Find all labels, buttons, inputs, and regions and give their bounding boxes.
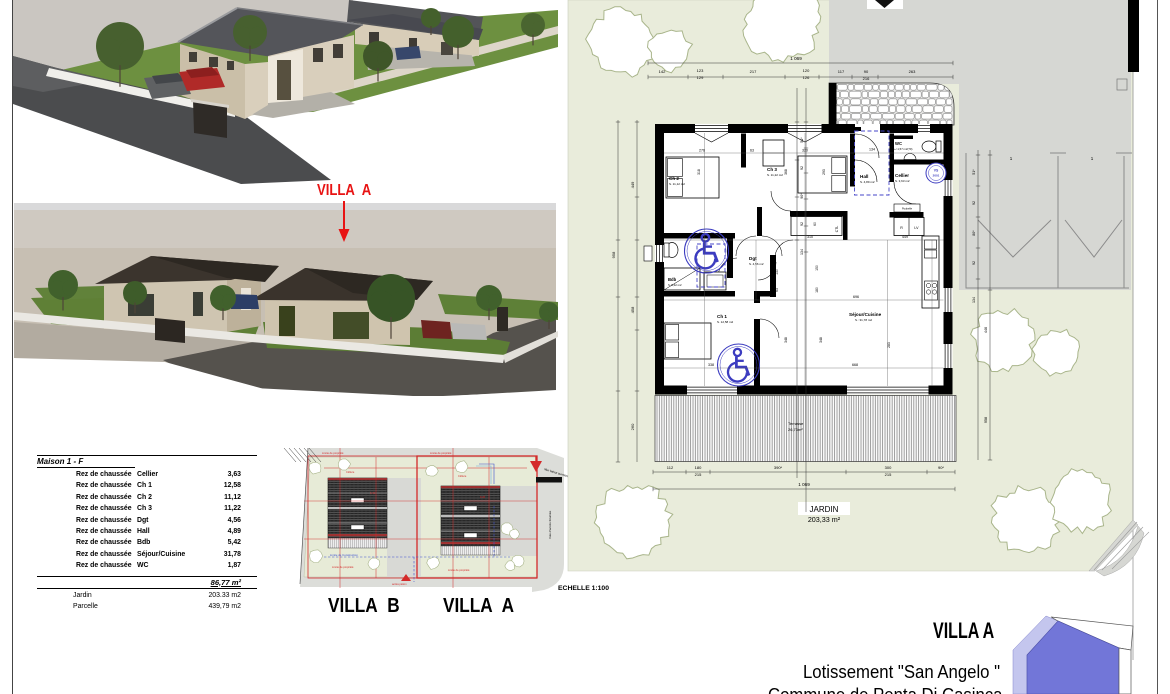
svg-text:310: 310 [807,235,813,239]
svg-text:696: 696 [853,295,859,299]
svg-text:368: 368 [784,169,788,175]
svg-text:348: 348 [784,337,788,343]
svg-text:129: 129 [697,75,704,80]
svg-text:446: 446 [984,327,988,333]
svg-text:318: 318 [658,337,662,343]
svg-text:180: 180 [695,465,702,470]
svg-text:390*: 390* [774,465,783,470]
svg-text:217: 217 [750,69,757,74]
svg-text:S. 3,63 m2: S. 3,63 m2 [895,179,910,183]
svg-text:Bdb: Bdb [668,277,677,282]
svg-text:180: 180 [815,287,819,293]
svg-text:348: 348 [819,337,823,343]
svg-text:203,33 m²: 203,33 m² [808,515,841,524]
svg-text:958: 958 [984,417,988,423]
svg-text:9,45: 9,45 [480,495,486,499]
svg-text:142: 142 [659,69,666,74]
svg-text:120: 120 [803,68,810,73]
svg-text:Terrasse: Terrasse [788,421,804,426]
svg-text:130: 130 [775,269,779,275]
svg-text:449: 449 [630,181,635,188]
svg-text:92: 92 [800,222,804,226]
svg-text:CTL: CTL [835,226,839,233]
svg-text:26,73m²: 26,73m² [788,427,803,432]
svg-text:JARDIN: JARDIN [810,505,839,514]
svg-text:Poubelle: Poubelle [902,207,913,211]
svg-text:318: 318 [658,169,662,175]
svg-text:Hall: Hall [860,174,868,179]
svg-text:126: 126 [803,75,810,80]
svg-text:Limite de Construction: Limite de Construction [330,553,358,557]
svg-text:1 069: 1 069 [798,482,810,487]
svg-text:S. 11,22 m2: S. 11,22 m2 [767,173,783,177]
svg-text:150: 150 [815,265,819,271]
svg-text:117: 117 [838,69,845,74]
svg-text:1 069: 1 069 [790,56,802,61]
svg-text:260: 260 [630,423,635,430]
svg-text:318: 318 [697,169,701,175]
svg-text:Limite de propriété: Limite de propriété [332,565,354,569]
svg-text:Ch 2: Ch 2 [669,176,679,181]
svg-text:S.: 31,78 m2: S.: 31,78 m2 [855,318,872,322]
svg-text:276: 276 [699,149,705,153]
svg-text:668: 668 [852,363,858,367]
svg-text:Limite de propriété: Limite de propriété [448,568,470,572]
svg-text:215: 215 [885,472,892,477]
svg-text:S. 11,12 m2: S. 11,12 m2 [669,182,685,186]
svg-text:293: 293 [822,169,826,175]
svg-text:accès piéton: accès piéton [392,582,407,586]
svg-text:S. 12,58 m2: S. 12,58 m2 [717,320,734,324]
svg-text:2001: 2001 [933,174,940,178]
svg-text:Clôture: Clôture [346,470,355,474]
svg-text:134: 134 [869,148,875,152]
svg-text:958: 958 [611,251,616,258]
svg-text:300: 300 [885,465,892,470]
svg-text:51*: 51* [800,137,804,143]
svg-text:Clôture: Clôture [458,474,467,478]
svg-text:Limite de propriété: Limite de propriété [430,451,452,455]
svg-text:134: 134 [972,297,976,303]
svg-text:449: 449 [902,235,908,239]
svg-text:S. 4,89 m2: S. 4,89 m2 [860,180,875,184]
svg-text:+/-1,57 m2(70): +/-1,57 m2(70) [894,147,912,151]
svg-text:63: 63 [750,149,754,153]
svg-text:92: 92 [800,166,804,170]
svg-text:9,45: 9,45 [370,491,376,495]
svg-text:R: R [900,226,903,230]
svg-text:134: 134 [800,249,804,255]
svg-text:92: 92 [972,201,976,205]
svg-text:226: 226 [682,235,688,239]
svg-text:51*: 51* [972,169,976,175]
svg-text:VS: VS [934,169,939,173]
svg-text:Séjour/Cuisine: Séjour/Cuisine [849,312,882,317]
svg-text:458: 458 [630,306,635,313]
svg-text:263: 263 [909,69,916,74]
svg-text:LV: LV [914,226,919,230]
svg-text:Limite de propriété: Limite de propriété [322,451,344,455]
svg-text:80*: 80* [972,230,976,236]
svg-text:123: 123 [697,68,704,73]
svg-text:90*: 90* [938,465,944,470]
svg-text:63: 63 [775,288,779,292]
svg-text:90*: 90* [800,193,804,199]
svg-text:Cellier: Cellier [895,173,909,178]
svg-text:S. 4,56 m2: S. 4,56 m2 [749,262,764,266]
svg-text:90: 90 [864,69,869,74]
svg-text:320: 320 [802,149,808,153]
svg-text:92: 92 [972,261,976,265]
svg-text:Ch 1: Ch 1 [717,314,727,319]
svg-text:60: 60 [813,222,817,226]
svg-text:Ch 3: Ch 3 [767,167,777,172]
svg-text:215: 215 [695,472,702,477]
svg-text:338: 338 [708,363,714,367]
svg-text:WC: WC [895,141,902,146]
svg-text:Voie d'accès bitumée: Voie d'accès bitumée [548,510,552,539]
svg-text:112: 112 [667,465,674,470]
svg-text:283: 283 [887,342,891,348]
svg-text:S. 5,42 m2: S. 5,42 m2 [668,283,682,287]
svg-text:216: 216 [863,76,870,81]
